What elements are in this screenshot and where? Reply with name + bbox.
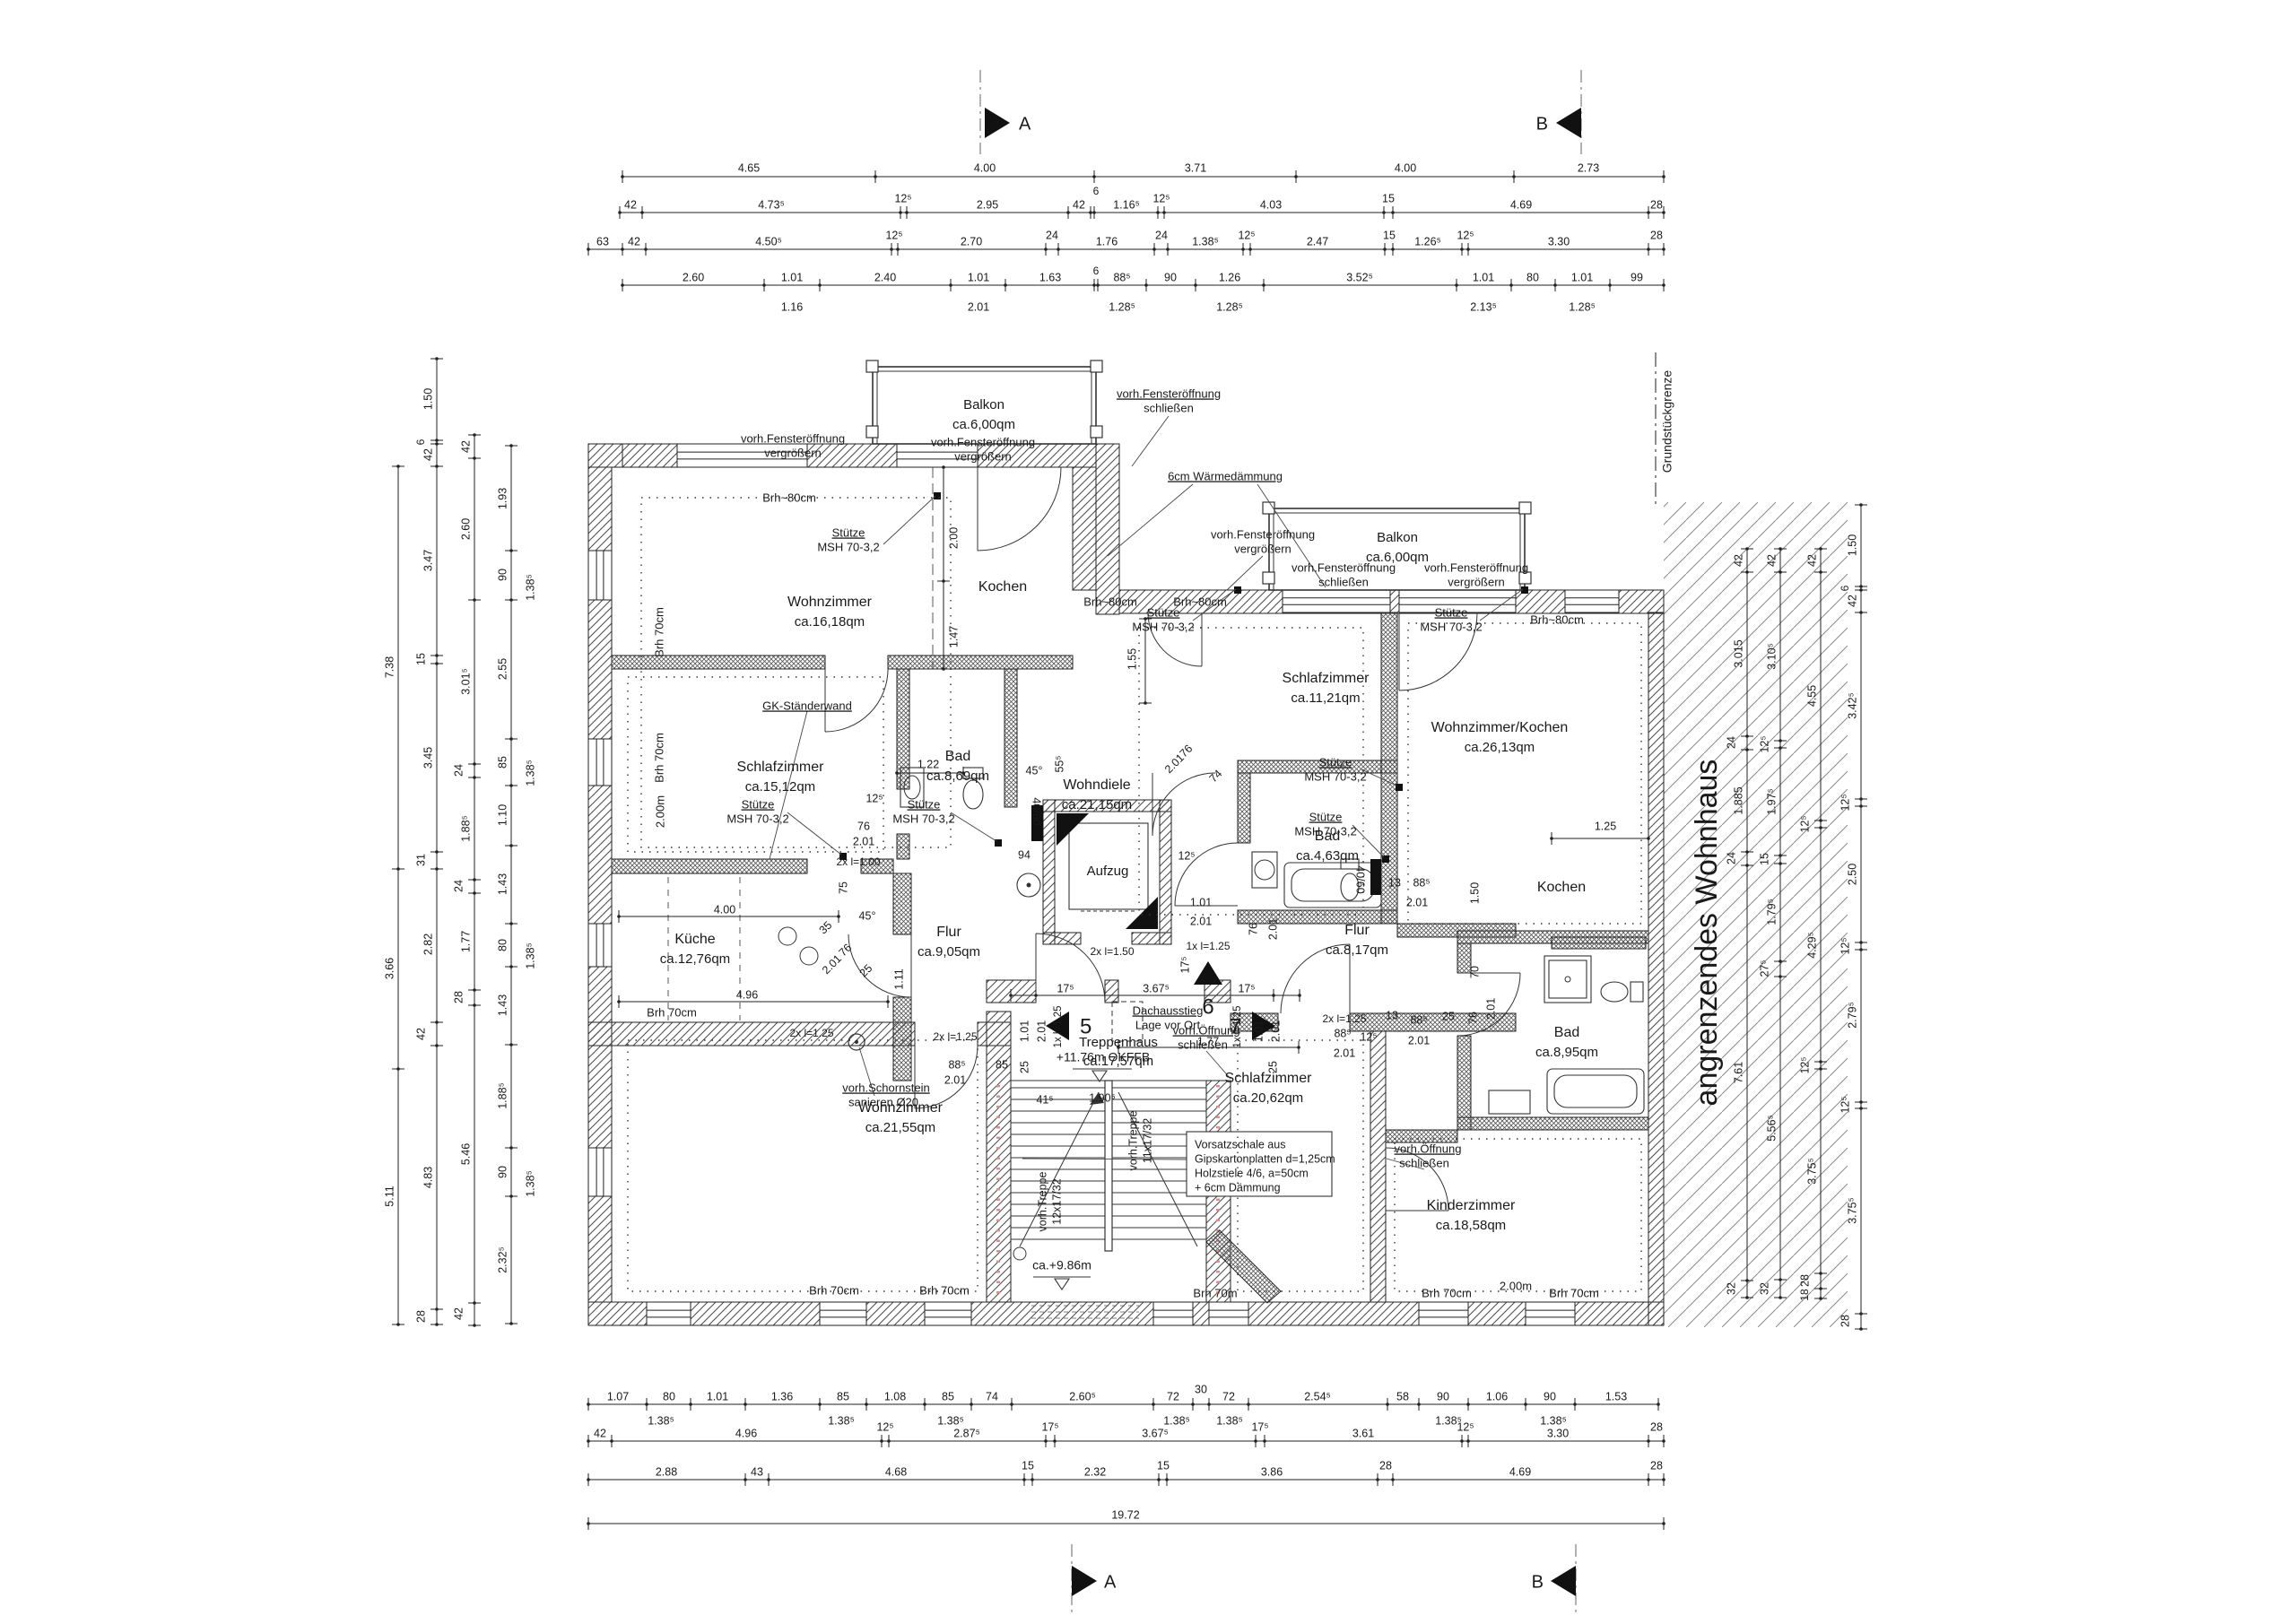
room-wohnzimmer-kochen-name: Wohnzimmer/Kochen bbox=[1431, 720, 1569, 735]
room-wohndiele-name: Wohndiele bbox=[1063, 777, 1130, 793]
dim-r1-4: 1.885 bbox=[1732, 786, 1744, 814]
note-brh-7: Brh 70cm bbox=[919, 1283, 970, 1297]
room-kochen-1-name: Kochen bbox=[978, 579, 1027, 595]
dim-r4-9: 12⁵ bbox=[1839, 1096, 1851, 1113]
dim-r3-5: 12⁵ bbox=[1798, 1056, 1811, 1073]
dim-b1-17: 90 bbox=[1544, 1390, 1556, 1403]
dim-177: 1.77 bbox=[1197, 1035, 1219, 1047]
dim-l2-8: 2.82 bbox=[422, 934, 434, 955]
dim-400: 4.00 bbox=[714, 903, 735, 916]
door-marker-6 bbox=[1194, 961, 1222, 985]
dim-t1-5: 2.73 bbox=[1578, 161, 1599, 174]
dim-t3-8: 24 bbox=[1155, 229, 1168, 241]
window bbox=[820, 1302, 866, 1325]
dim-r3-2: 4.55 bbox=[1805, 685, 1818, 707]
dim-1xl125-2: 1x l=1.25 bbox=[1053, 1006, 1064, 1048]
dim-r4-5: 12⁵ bbox=[1839, 794, 1851, 811]
note-dachausstieg-a: Dachausstieg bbox=[1133, 1003, 1204, 1017]
dim-b2-10: 3.30 bbox=[1547, 1427, 1569, 1439]
dim-b3-1: 2.88 bbox=[656, 1465, 677, 1478]
window bbox=[588, 924, 612, 967]
note-986: ca.+9.86m bbox=[1032, 1258, 1091, 1272]
dim-t5-5: 2.13⁵ bbox=[1470, 300, 1497, 313]
dim-t4-7: 88⁵ bbox=[1113, 271, 1130, 283]
dim-496: 4.96 bbox=[736, 988, 758, 1001]
dim-b2-7: 17⁵ bbox=[1251, 1420, 1268, 1433]
window bbox=[588, 1148, 612, 1196]
dim-b1s-3: 1.38⁵ bbox=[937, 1414, 964, 1427]
note-brh-10: Brh 70cm bbox=[1549, 1286, 1599, 1299]
dim-415: 41⁵ bbox=[1036, 1093, 1053, 1106]
dim-175s-3: 17⁵ bbox=[1238, 982, 1255, 994]
dim-l3-4: 24 bbox=[452, 764, 465, 777]
room-flur-1-name: Flur bbox=[936, 925, 961, 940]
dim-l4-1: 1.93 bbox=[496, 488, 509, 509]
note-fenster-1a: vorh.Fensteröffnung bbox=[741, 431, 845, 445]
note-stuetze-1b: MSH 70-3,2 bbox=[817, 540, 879, 553]
dim-b4-1: 19.72 bbox=[1111, 1508, 1139, 1521]
dim-l3-10: 42 bbox=[452, 1307, 465, 1320]
dim-b1-16: 1.06 bbox=[1486, 1390, 1508, 1403]
room-kinderzimmer-area: ca.18,58qm bbox=[1436, 1218, 1506, 1233]
note-nachbar: angrenzendes Wohnhaus bbox=[1690, 760, 1724, 1107]
note-stuetze-7b: MSH 70-3,2 bbox=[1294, 824, 1356, 838]
room-balkon-1-name: Balkon bbox=[963, 397, 1004, 413]
dim-13-2: 13 bbox=[1386, 1009, 1398, 1021]
dim-b1-11: 30 bbox=[1195, 1383, 1207, 1395]
dim-t4-14: 99 bbox=[1631, 271, 1643, 283]
dim-885-4: 88⁵ bbox=[1410, 1013, 1427, 1026]
dim-l3-1: 42 bbox=[459, 440, 472, 453]
note-stuetze-7a: Stütze bbox=[1309, 810, 1343, 823]
note-stuetze-5a: Stütze bbox=[1435, 605, 1468, 619]
dim-b3-7: 3.86 bbox=[1261, 1465, 1283, 1478]
note-dachausstieg-b: Lage vor Ort bbox=[1135, 1018, 1201, 1031]
room-flur-1-area: ca.9,05qm bbox=[918, 944, 980, 960]
room-bad-1-area: ca.8,69qm bbox=[926, 769, 989, 784]
dim-t3-7: 1.76 bbox=[1096, 235, 1118, 248]
room-wohnzimmer-1-name: Wohnzimmer bbox=[787, 595, 873, 610]
dim-t4-1: 2.60 bbox=[683, 271, 704, 283]
dim-t4-13: 1.01 bbox=[1571, 271, 1593, 283]
dim-555: 55⁵ bbox=[1053, 755, 1065, 772]
dim-r3-6: 3.75⁵ bbox=[1805, 1158, 1818, 1185]
note-fenster-6b: vergrößern bbox=[1448, 575, 1505, 588]
dim-b2-11: 28 bbox=[1650, 1420, 1663, 1433]
dim-b3-4: 15 bbox=[1022, 1459, 1034, 1472]
dim-l2-3: 42 bbox=[422, 448, 434, 461]
dim-chain-top-1 bbox=[621, 170, 1665, 183]
dim-t1-3: 3.71 bbox=[1185, 161, 1206, 174]
marker-6: 6 bbox=[1202, 994, 1213, 1019]
note-200m: 2.00m bbox=[653, 795, 666, 828]
dim-b1-5: 85 bbox=[837, 1390, 849, 1403]
dim-t3-12: 15 bbox=[1383, 229, 1396, 241]
note-fenster-4b: vergrößern bbox=[1234, 542, 1291, 555]
dim-155: 1.55 bbox=[1126, 648, 1138, 670]
dim-b1-8: 74 bbox=[986, 1390, 998, 1403]
dim-chain-top-4 bbox=[621, 279, 1665, 291]
dim-t4-4: 1.01 bbox=[968, 271, 989, 283]
dim-t4-9: 1.26 bbox=[1219, 271, 1240, 283]
note-treppe-1a: vorh.Treppe bbox=[1036, 1171, 1048, 1231]
dim-b1-18: 1.53 bbox=[1605, 1390, 1627, 1403]
dim-2xl125-1: 2x l=1.25 bbox=[789, 1027, 833, 1039]
dim-b1-4: 1.36 bbox=[771, 1390, 793, 1403]
dim-85-1: 85 bbox=[996, 1058, 1008, 1071]
dim-l4-4: 85 bbox=[496, 756, 509, 769]
dim-b1s-4: 1.38⁵ bbox=[1163, 1414, 1190, 1427]
dim-25-2: 25 bbox=[1018, 1061, 1031, 1073]
dim-l2-9: 42 bbox=[414, 1028, 427, 1040]
dim-r1-1: 42 bbox=[1732, 554, 1744, 567]
dim-175s-1: 17⁵ bbox=[1178, 956, 1191, 973]
dim-l1-1: 7.38 bbox=[383, 656, 396, 678]
room-balkon-1-area: ca.6,00qm bbox=[952, 417, 1015, 432]
dim-l2-5: 15 bbox=[414, 653, 427, 665]
dim-r2-8: 5.56⁵ bbox=[1765, 1115, 1778, 1142]
dim-t5-6: 1.28⁵ bbox=[1569, 300, 1596, 313]
dimension-chains bbox=[392, 170, 1867, 1530]
dim-b1-15: 90 bbox=[1437, 1390, 1449, 1403]
dim-t3-3: 4.50⁵ bbox=[755, 235, 782, 248]
room-bad-2-area: ca.4,63qm bbox=[1296, 848, 1359, 864]
window bbox=[1419, 1302, 1468, 1325]
room-schlafzimmer-3-area: ca.20,62qm bbox=[1233, 1090, 1303, 1106]
dim-r1-7: 32 bbox=[1725, 1282, 1737, 1295]
dim-chain-left-3 bbox=[468, 433, 481, 1327]
dim-l4-8: 1.43 bbox=[496, 994, 509, 1016]
note-okffb: +11.76m OKFFB bbox=[1057, 1050, 1150, 1064]
note-brh-9: Brh 70cm bbox=[1422, 1286, 1472, 1299]
note-daemmung: 6cm Wärmedämmung bbox=[1168, 469, 1283, 482]
note-treppe-1b: 12x17/32 bbox=[1050, 1178, 1063, 1224]
dim-76-1: 76 bbox=[857, 820, 870, 832]
dim-l4-11: 2.32⁵ bbox=[496, 1246, 509, 1273]
window bbox=[1209, 1302, 1248, 1325]
note-stuetze-6b: MSH 70-3,2 bbox=[1304, 769, 1366, 783]
dim-r3-8: 18 bbox=[1798, 1289, 1811, 1301]
marker-a-top: A bbox=[1019, 114, 1031, 134]
dim-t2-11: 4.69 bbox=[1510, 198, 1532, 211]
dim-35: 35 bbox=[817, 919, 835, 937]
dim-201-11: 2.01 bbox=[1408, 1034, 1430, 1046]
dim-b2-2: 4.96 bbox=[735, 1427, 757, 1439]
door-swing bbox=[978, 467, 1061, 551]
dim-t3-16: 28 bbox=[1650, 229, 1663, 241]
marker-7: 7 bbox=[1230, 1014, 1241, 1038]
note-fenster-3b: schließen bbox=[1144, 401, 1194, 414]
dim-r3-7: 28 bbox=[1798, 1274, 1811, 1287]
dim-l4-2: 90 bbox=[496, 569, 509, 581]
note-schornstein-b: sanieren Ø20 bbox=[848, 1095, 918, 1108]
dim-t5-1: 1.16 bbox=[781, 300, 803, 313]
room-kochen-2-name: Kochen bbox=[1537, 880, 1586, 895]
dim-b1-2: 80 bbox=[663, 1390, 675, 1403]
room-bad-1-name: Bad bbox=[945, 749, 970, 764]
note-grenze: Grundstückgrenze bbox=[1660, 370, 1674, 473]
dim-b1-6: 1.08 bbox=[884, 1390, 906, 1403]
dim-l3-5: 1.88⁵ bbox=[459, 815, 472, 842]
dim-125: 1.25 bbox=[1595, 820, 1616, 832]
dim-201-9: 2.01 bbox=[1406, 896, 1428, 908]
dim-r2-2: 3.10⁵ bbox=[1765, 643, 1778, 670]
dim-1905: 1.90⁵ bbox=[1089, 1091, 1116, 1104]
note-treppe-2a: vorh.Treppe bbox=[1126, 1110, 1139, 1170]
dim-201-5: 2.01 bbox=[1035, 1020, 1048, 1042]
dim-125s-3: 12⁵ bbox=[1360, 1030, 1377, 1043]
marker-b-bottom: B bbox=[1532, 1572, 1544, 1592]
dim-t3-2: 42 bbox=[628, 235, 640, 248]
floor-plan-drawing: Wohnzimmerca.16,18qmKochenWohndieleca.21… bbox=[0, 0, 2296, 1624]
dim-t4-10: 3.52⁵ bbox=[1346, 271, 1373, 283]
dim-150v: 1.50 bbox=[1468, 882, 1481, 904]
dim-b1s-5: 1.38⁵ bbox=[1216, 1414, 1243, 1427]
dim-b3-8: 28 bbox=[1379, 1459, 1392, 1472]
note-brh-5: Brh 70cm bbox=[647, 1005, 697, 1019]
dim-122: 1.22 bbox=[918, 758, 939, 770]
dim-201-8: 2.01 bbox=[1266, 918, 1279, 940]
dim-111: 1.11 bbox=[892, 968, 905, 989]
dim-t5-3: 1.28⁵ bbox=[1109, 300, 1135, 313]
note-stuetze-6a: Stütze bbox=[1319, 755, 1352, 769]
dim-201-6: 2.01 bbox=[1269, 1020, 1282, 1042]
dim-r2-6: 1.79⁵ bbox=[1765, 899, 1778, 925]
dim-t3-5: 2.70 bbox=[961, 235, 982, 248]
note-brh-1: Brh~80cm bbox=[762, 491, 816, 504]
dim-t4-3: 2.40 bbox=[874, 271, 896, 283]
dim-45-2: 45° bbox=[859, 909, 876, 922]
dim-t4-2: 1.01 bbox=[781, 271, 803, 283]
dim-t3-4: 12⁵ bbox=[885, 229, 902, 241]
section-arrow-a-top bbox=[985, 108, 1010, 138]
dim-l2-11: 28 bbox=[414, 1310, 427, 1323]
note-fenster-6a: vorh.Fensteröffnung bbox=[1424, 560, 1528, 574]
dim-chain-top-3 bbox=[587, 243, 1665, 256]
dim-t3-9: 1.38⁵ bbox=[1192, 235, 1219, 248]
dim-76-5: 76 bbox=[1466, 1012, 1479, 1024]
dim-b1s-7: 1.38⁵ bbox=[1540, 1414, 1567, 1427]
dim-l4-9: 1.88⁵ bbox=[496, 1082, 509, 1109]
dim-l3-6: 24 bbox=[452, 880, 465, 892]
note-stuetze-2a: Stütze bbox=[742, 797, 775, 811]
dim-175s-2: 17⁵ bbox=[1057, 982, 1074, 994]
dim-l4-6: 1.43 bbox=[496, 873, 509, 895]
room-schlafzimmer-1-name: Schlafzimmer bbox=[737, 760, 825, 775]
dim-b1-14: 58 bbox=[1396, 1390, 1409, 1403]
dim-t5-2: 2.01 bbox=[968, 300, 989, 313]
dim-l4s-2: 1.38⁵ bbox=[524, 760, 536, 786]
window bbox=[588, 551, 612, 600]
dim-l4-3: 2.55 bbox=[496, 658, 509, 680]
room-schlafzimmer-1-area: ca.15,12qm bbox=[745, 779, 815, 795]
dim-201-2: 2.01 bbox=[820, 952, 844, 977]
dim-101-2: 1.01 bbox=[1018, 1020, 1031, 1042]
note-fenster-2a: vorh.Fensteröffnung bbox=[931, 435, 1035, 448]
dim-b3-2: 43 bbox=[751, 1465, 763, 1478]
note-brh-8: Brh 70m bbox=[1193, 1286, 1237, 1299]
dim-t4-5: 1.63 bbox=[1039, 271, 1061, 283]
dim-t2-6: 6 bbox=[1093, 185, 1100, 197]
room-flur-2-name: Flur bbox=[1344, 923, 1370, 938]
dim-r3-3: 12⁵ bbox=[1798, 815, 1811, 832]
dim-b2-9: 12⁵ bbox=[1457, 1420, 1474, 1433]
note-treppe-2b: 11x17/32 bbox=[1141, 1118, 1153, 1164]
dim-b3-6: 15 bbox=[1157, 1459, 1170, 1472]
dim-13-1: 13 bbox=[1388, 876, 1401, 889]
note-brh-6: Brh 70cm bbox=[809, 1283, 859, 1297]
dim-25-3: 25 bbox=[1266, 1061, 1279, 1073]
window bbox=[588, 739, 612, 786]
dim-r4-3: 42 bbox=[1846, 595, 1858, 607]
section-arrow-b-top bbox=[1556, 108, 1581, 138]
note-brh-4: Brh~80cm bbox=[1530, 612, 1584, 626]
dim-25-1: 25 bbox=[857, 962, 875, 980]
marker-b-top: B bbox=[1536, 114, 1548, 134]
note-fenster-3a: vorh.Fensteröffnung bbox=[1117, 386, 1221, 400]
dim-885-1: 88⁵ bbox=[948, 1058, 965, 1071]
dim-t2-4: 2.95 bbox=[977, 198, 998, 211]
dim-l2-4: 3.47 bbox=[422, 550, 434, 571]
dim-101-1: 1.01 bbox=[1190, 896, 1212, 908]
room-wohnzimmer-1-area: ca.16,18qm bbox=[795, 614, 865, 630]
dim-l2-1: 1.50 bbox=[422, 388, 434, 410]
dim-b3-5: 2.32 bbox=[1084, 1465, 1106, 1478]
note-brh-2: Brh~80cm bbox=[1083, 595, 1137, 608]
note-vorsatz-b: Gipskartonplatten d=1,25cm bbox=[1195, 1152, 1335, 1165]
note-fenster-5a: vorh.Fensteröffnung bbox=[1291, 560, 1396, 574]
dim-147: 1.47 bbox=[947, 626, 960, 647]
dim-t2-10: 15 bbox=[1382, 192, 1395, 204]
dim-t2-9: 4.03 bbox=[1260, 198, 1282, 211]
dim-r2-3: 12⁵ bbox=[1758, 735, 1770, 752]
dim-l4s-3: 1.38⁵ bbox=[524, 942, 536, 969]
note-gk-wand: GK-Ständerwand bbox=[762, 699, 852, 712]
dim-l4-5: 1.10 bbox=[496, 804, 509, 826]
dim-t1-4: 4.00 bbox=[1395, 161, 1416, 174]
note-stuetze-4a: Stütze bbox=[1147, 605, 1180, 619]
note-stuetze-5b: MSH 70-3,2 bbox=[1420, 620, 1482, 633]
dim-r2-9: 32 bbox=[1758, 1282, 1770, 1295]
room-balkon-2-name: Balkon bbox=[1377, 530, 1418, 545]
dim-75: 75 bbox=[837, 881, 849, 894]
dim-b1-7: 85 bbox=[942, 1390, 954, 1403]
dim-t3-6: 24 bbox=[1046, 229, 1058, 241]
note-stuetze-2b: MSH 70-3,2 bbox=[726, 812, 788, 825]
dim-l3-2: 2.60 bbox=[459, 518, 472, 540]
dim-b1-3: 1.01 bbox=[707, 1390, 728, 1403]
floor-plan-page: Wohnzimmerca.16,18qmKochenWohndieleca.21… bbox=[0, 0, 2296, 1624]
window bbox=[1153, 1302, 1193, 1325]
dim-l4-7: 80 bbox=[496, 939, 509, 951]
note-oeffnung-2b: schließen bbox=[1399, 1156, 1449, 1169]
room-wohndiele-area: ca.21,15qm bbox=[1062, 797, 1132, 812]
dim-b1-9: 2.60⁵ bbox=[1069, 1390, 1096, 1403]
note-fenster-5b: schließen bbox=[1318, 575, 1369, 588]
dim-25-4: 25 bbox=[1442, 1010, 1455, 1022]
dim-l3-9: 5.46 bbox=[459, 1143, 472, 1165]
section-arrow-b-bottom bbox=[1551, 1566, 1576, 1596]
dim-r4-8: 2.79⁵ bbox=[1846, 1002, 1858, 1029]
dim-b3-3: 4.68 bbox=[885, 1465, 907, 1478]
dim-45-1: 45° bbox=[1026, 764, 1043, 777]
dim-2xl100: 2x l=1.00 bbox=[836, 855, 880, 868]
note-stuetze-3a: Stütze bbox=[908, 797, 941, 811]
dim-b3-9: 4.69 bbox=[1509, 1465, 1531, 1478]
dim-b1-10: 72 bbox=[1167, 1390, 1179, 1403]
dim-t3-15: 3.30 bbox=[1548, 235, 1570, 248]
dim-r1-5: 24 bbox=[1725, 852, 1737, 864]
dim-b2-5: 17⁵ bbox=[1041, 1420, 1058, 1433]
dim-r4-4: 3.42⁵ bbox=[1846, 692, 1858, 719]
room-schlafzimmer-2-name: Schlafzimmer bbox=[1283, 671, 1370, 686]
dim-t3-13: 1.26⁵ bbox=[1414, 235, 1441, 248]
dim-l2-10: 4.83 bbox=[422, 1167, 434, 1188]
dim-r1-2: 3.015 bbox=[1732, 639, 1744, 667]
dim-t2-12: 28 bbox=[1650, 198, 1663, 211]
dim-t4-6: 6 bbox=[1093, 265, 1100, 277]
dim-b1-12: 72 bbox=[1222, 1390, 1235, 1403]
dim-b3-10: 28 bbox=[1650, 1459, 1663, 1472]
window bbox=[925, 1302, 971, 1325]
dim-l2-7: 31 bbox=[414, 854, 427, 866]
dim-t4-8: 90 bbox=[1164, 271, 1177, 283]
note-schornstein-a: vorh.Schornstein bbox=[842, 1081, 930, 1094]
dim-76-4: 76 bbox=[1247, 923, 1259, 935]
dim-t3-14: 12⁵ bbox=[1457, 229, 1474, 241]
dim-125s: 12⁵ bbox=[865, 792, 883, 804]
dim-l3-8: 28 bbox=[452, 991, 465, 1003]
dim-r2-5: 15 bbox=[1758, 853, 1770, 865]
dim-l4s-1: 1.38⁵ bbox=[524, 574, 536, 601]
dim-chain-bottom-3 bbox=[587, 1473, 1665, 1486]
marker-a-bottom: A bbox=[1104, 1572, 1117, 1592]
dim-b1s-1: 1.38⁵ bbox=[648, 1414, 674, 1427]
dim-101-3: 1.01 bbox=[1252, 1020, 1265, 1042]
note-stuetze-3b: MSH 70-3,2 bbox=[892, 812, 954, 825]
note-fenster-4a: vorh.Fensteröffnung bbox=[1211, 527, 1315, 541]
window bbox=[1526, 1302, 1575, 1325]
dim-r2-4: 1.97⁵ bbox=[1765, 788, 1778, 815]
dim-r2-7: 27⁵ bbox=[1758, 960, 1770, 977]
dim-r1-3: 24 bbox=[1725, 736, 1737, 749]
note-brh-12: Brh 70cm bbox=[652, 733, 665, 783]
dim-201-3: 2.01 bbox=[1190, 915, 1212, 927]
dim-t2-1: 42 bbox=[624, 198, 637, 211]
dim-l1-2: 3.66 bbox=[383, 958, 396, 979]
dim-2xl125-2: 2x l=1.25 bbox=[933, 1030, 977, 1043]
dim-t2-5: 42 bbox=[1073, 198, 1085, 211]
dim-1xl125-1: 1x l=1.25 bbox=[1186, 940, 1230, 952]
dim-t4-12: 80 bbox=[1526, 271, 1539, 283]
dim-94: 94 bbox=[1018, 848, 1031, 861]
dim-t3-11: 2.47 bbox=[1307, 235, 1328, 248]
dim-b2-3: 12⁵ bbox=[876, 1420, 893, 1433]
dim-b2-4: 2.87⁵ bbox=[953, 1427, 980, 1439]
note-fenster-2b: vergrößern bbox=[954, 449, 1012, 463]
note-vorsatz-a: Vorsatzschale aus bbox=[1195, 1138, 1285, 1151]
dim-r4-7: 12⁵ bbox=[1839, 937, 1851, 954]
window bbox=[1565, 590, 1619, 612]
dim-r2-1: 42 bbox=[1765, 554, 1778, 567]
note-vorsatz-c: Holzstiele 4/6, a=50cm bbox=[1195, 1167, 1309, 1179]
dim-l2-6: 3.45 bbox=[422, 747, 434, 769]
dim-t2-7: 1.16⁵ bbox=[1113, 198, 1140, 211]
note-vorsatz-d: + 6cm Dämmung bbox=[1195, 1181, 1281, 1194]
note-200m-b: 2.00m bbox=[1500, 1279, 1532, 1292]
dim-l4-10: 90 bbox=[496, 1166, 509, 1178]
dim-r4-10: 3.75⁵ bbox=[1846, 1197, 1858, 1224]
